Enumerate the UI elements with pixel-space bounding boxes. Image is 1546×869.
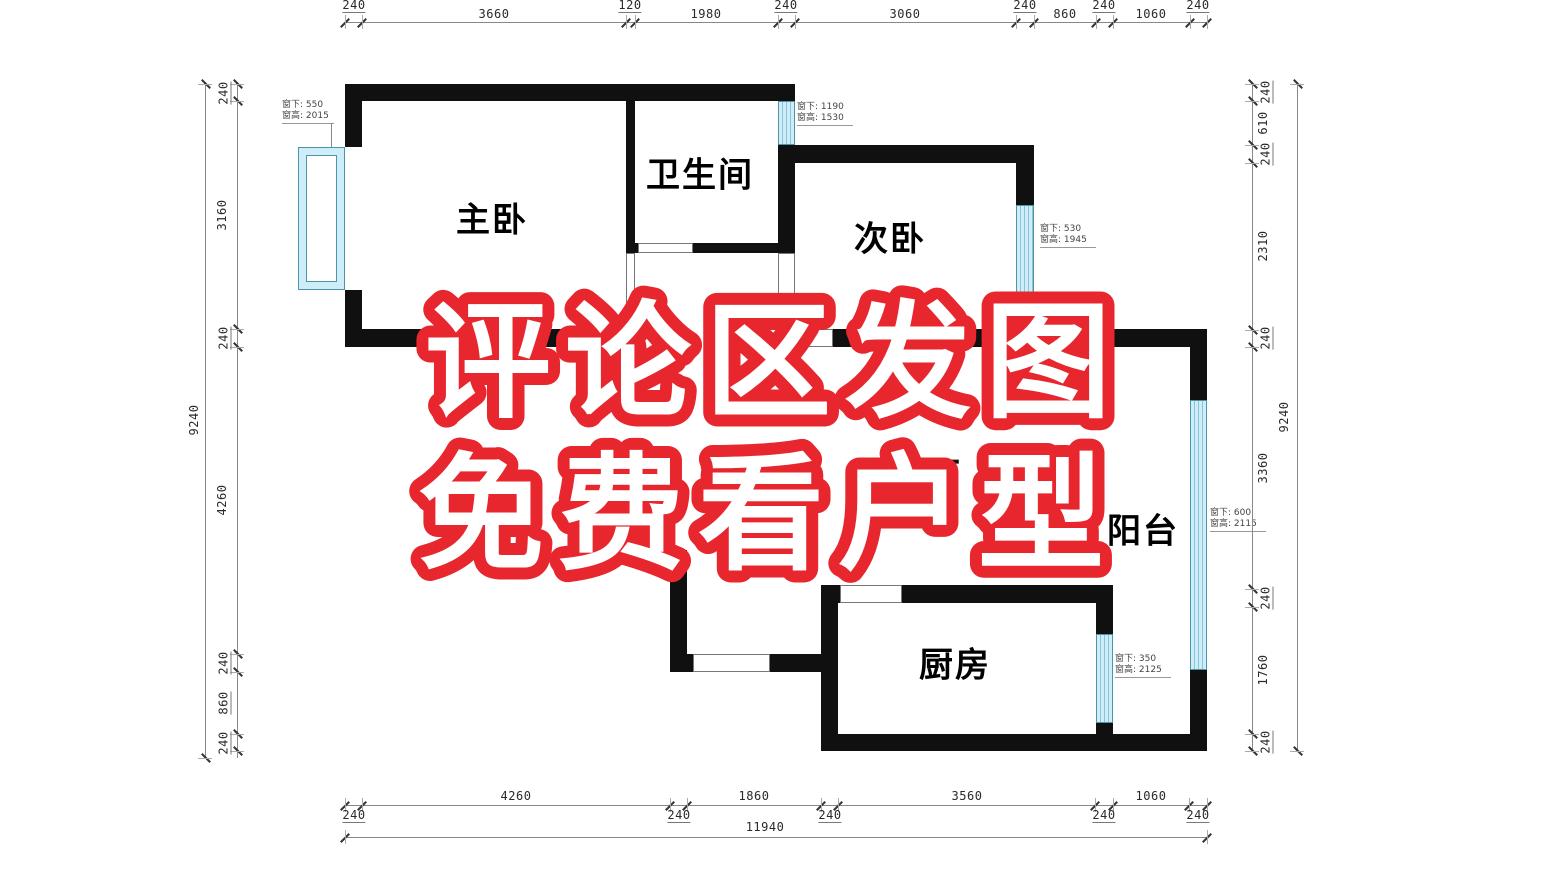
promo-overlay-line1: 评论区发图	[425, 289, 1125, 436]
promo-overlay-line2: 免费看户型	[418, 441, 1118, 588]
promo-overlay: 评论区发图 免费看户型	[0, 0, 1546, 869]
floor-plan-canvas: 主卧 卫生间 次卧 阳台 厨房 厅 窗下: 550 窗高: 2015 窗下: 1…	[0, 0, 1546, 869]
